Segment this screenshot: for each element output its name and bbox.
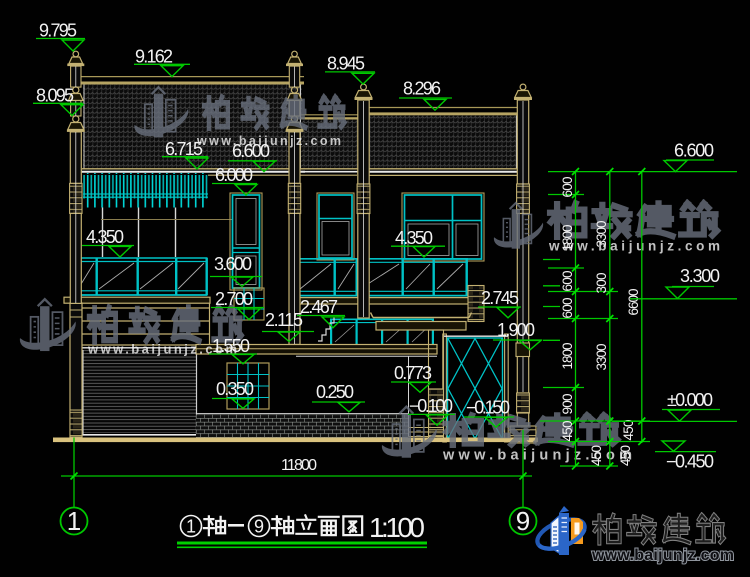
svg-text:1:100: 1:100: [369, 512, 425, 543]
svg-text:450: 450: [560, 421, 575, 442]
svg-text:4.350: 4.350: [86, 227, 124, 247]
svg-text:−0.150: −0.150: [466, 398, 510, 418]
svg-text:2.115: 2.115: [265, 310, 303, 330]
svg-text:−0.450: −0.450: [666, 452, 714, 472]
svg-text:1.900: 1.900: [497, 320, 535, 340]
svg-text:1: 1: [67, 506, 81, 536]
svg-text:6.600: 6.600: [674, 141, 714, 161]
svg-text:0.773: 0.773: [394, 363, 432, 383]
svg-text:1800: 1800: [560, 343, 575, 370]
svg-text:9.795: 9.795: [39, 21, 77, 41]
svg-text:1800: 1800: [560, 225, 575, 252]
svg-text:2.700: 2.700: [215, 289, 253, 309]
svg-text:2.745: 2.745: [481, 288, 519, 308]
svg-text:3.300: 3.300: [680, 266, 720, 286]
svg-text:11800: 11800: [281, 457, 317, 474]
svg-text:600: 600: [560, 271, 575, 292]
svg-text:300: 300: [594, 273, 609, 294]
svg-text:±0.000: ±0.000: [667, 390, 713, 410]
svg-text:600: 600: [560, 298, 575, 319]
svg-text:900: 900: [560, 394, 575, 415]
svg-text:450: 450: [621, 420, 636, 441]
svg-text:6600: 6600: [626, 289, 641, 316]
svg-text:450: 450: [589, 445, 604, 466]
svg-text:0.250: 0.250: [316, 382, 354, 402]
svg-text:8.945: 8.945: [327, 54, 365, 74]
svg-text:3.600: 3.600: [214, 254, 252, 274]
svg-text:8.296: 8.296: [403, 79, 441, 99]
svg-text:3300: 3300: [594, 344, 609, 371]
svg-text:6.715: 6.715: [165, 139, 203, 159]
svg-text:0.350: 0.350: [216, 379, 254, 399]
svg-text:6.000: 6.000: [215, 165, 253, 185]
svg-text:1: 1: [186, 517, 196, 537]
svg-text:3300: 3300: [594, 221, 609, 248]
svg-text:2.467: 2.467: [300, 297, 338, 317]
svg-text:9: 9: [516, 506, 530, 536]
svg-text:9.162: 9.162: [135, 47, 173, 67]
svg-text:4.350: 4.350: [395, 228, 433, 248]
svg-text:1.550: 1.550: [212, 336, 250, 356]
svg-text:600: 600: [560, 177, 575, 198]
svg-text:8.095: 8.095: [36, 86, 74, 106]
svg-text:−0.100: −0.100: [409, 396, 453, 416]
svg-text:www.baijunjz.com: www.baijunjz.com: [591, 547, 734, 564]
svg-text:6.600: 6.600: [232, 141, 270, 161]
svg-text:9: 9: [254, 517, 264, 537]
svg-text:450: 450: [618, 445, 633, 466]
